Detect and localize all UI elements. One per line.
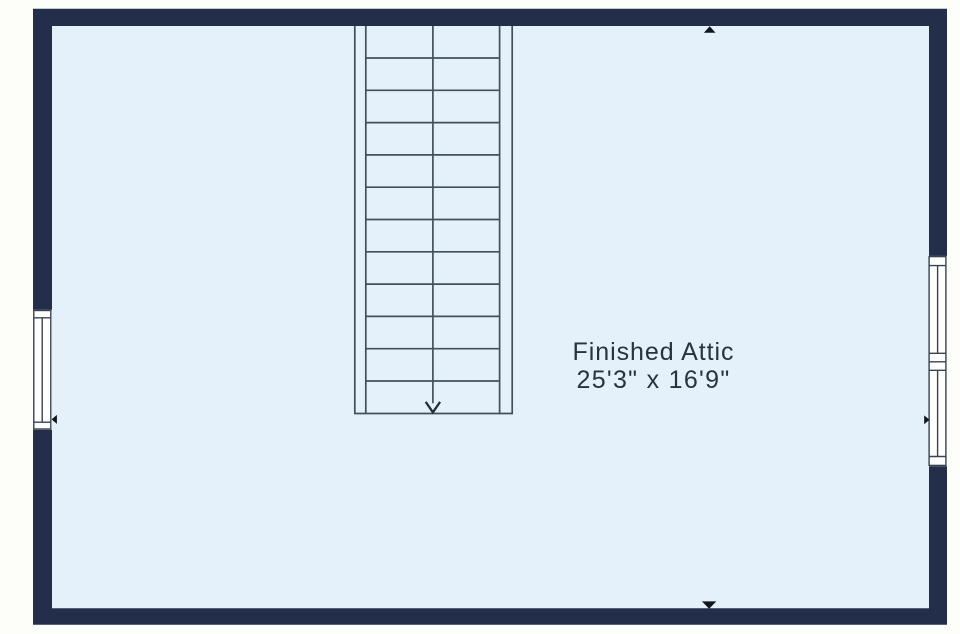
svg-text:Finished Attic: Finished Attic <box>573 338 735 366</box>
svg-text:25'3" x 16'9": 25'3" x 16'9" <box>576 366 730 394</box>
